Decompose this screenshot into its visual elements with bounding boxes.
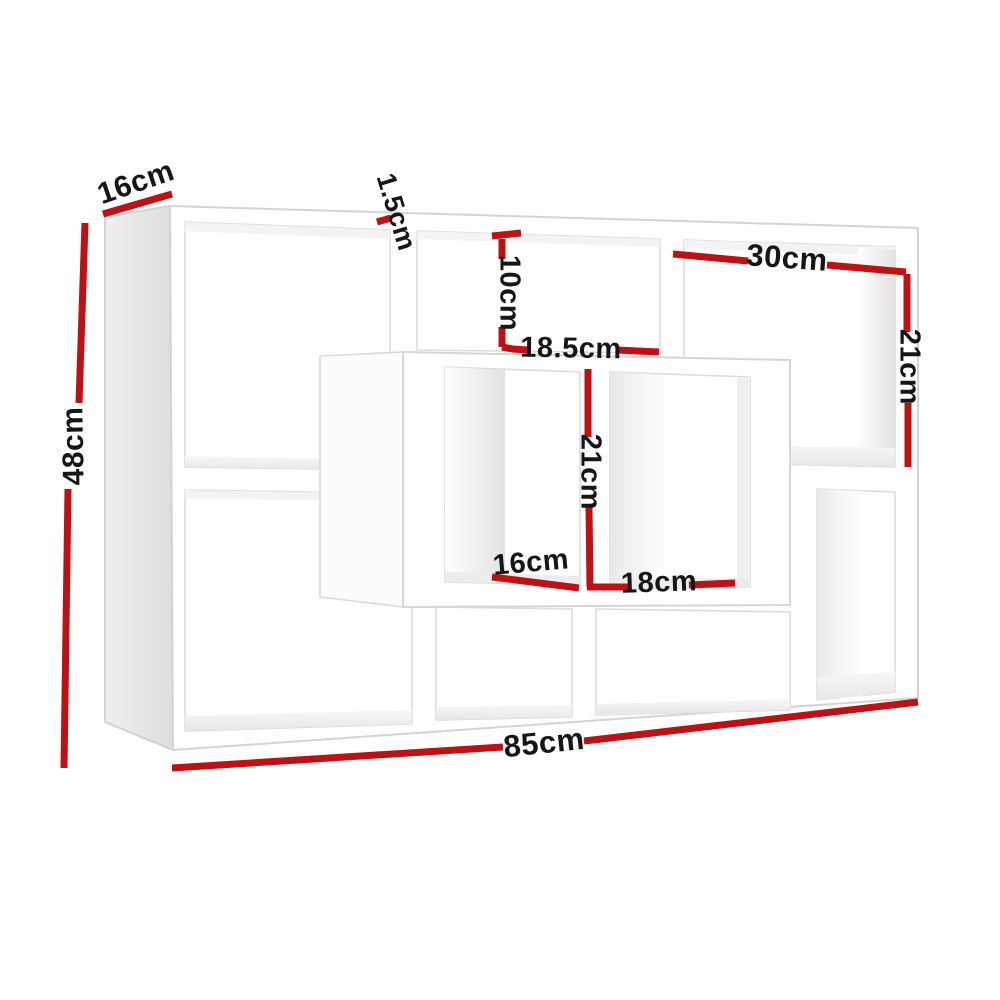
- dimension-top-middle-width-label: 18.5cm: [520, 332, 622, 367]
- dimension-line-top-middle-opening-width: [616, 350, 659, 352]
- dimension-line-top-middle-opening-height: [502, 347, 513, 349]
- dimension-centre-right-width-label: 18cm: [620, 565, 697, 601]
- opening-bottom-right-wall: [817, 489, 862, 700]
- wall-shelf-illustration: [0, 0, 1000, 1000]
- centre-box-right-opening-wall: [610, 372, 668, 589]
- dimension-centre-left-width-label: 16cm: [492, 543, 571, 583]
- opening-bottom-middle-left: [436, 607, 572, 720]
- centre-box-right-opening-side: [737, 377, 750, 587]
- centre-box-side-panel: [320, 352, 403, 607]
- dimension-line-overall-width: [172, 747, 503, 768]
- dimension-top-right-width-label: 30cm: [745, 237, 829, 279]
- dimension-height-label: 48cm: [56, 406, 91, 485]
- dimension-top-middle-height-label: 10cm: [493, 255, 526, 331]
- shelf-side-panel: [105, 206, 173, 750]
- dimension-top-right-height-label: 21cm: [893, 329, 926, 405]
- opening-top-right-wall: [858, 247, 895, 456]
- shelf-dimension-diagram: 16cm 48cm 1.5cm 10cm 18.5cm 30cm 21cm 21…: [0, 0, 1000, 1000]
- dimension-line-overall-height: [79, 223, 85, 403]
- dimension-line-centre-opening-height: [589, 507, 590, 587]
- dimension-centre-height-label: 21cm: [574, 434, 607, 510]
- opening-bottom-middle-right: [596, 609, 790, 715]
- dimension-line-top-middle-opening-height: [492, 233, 521, 236]
- dimension-line-overall-height: [64, 489, 68, 768]
